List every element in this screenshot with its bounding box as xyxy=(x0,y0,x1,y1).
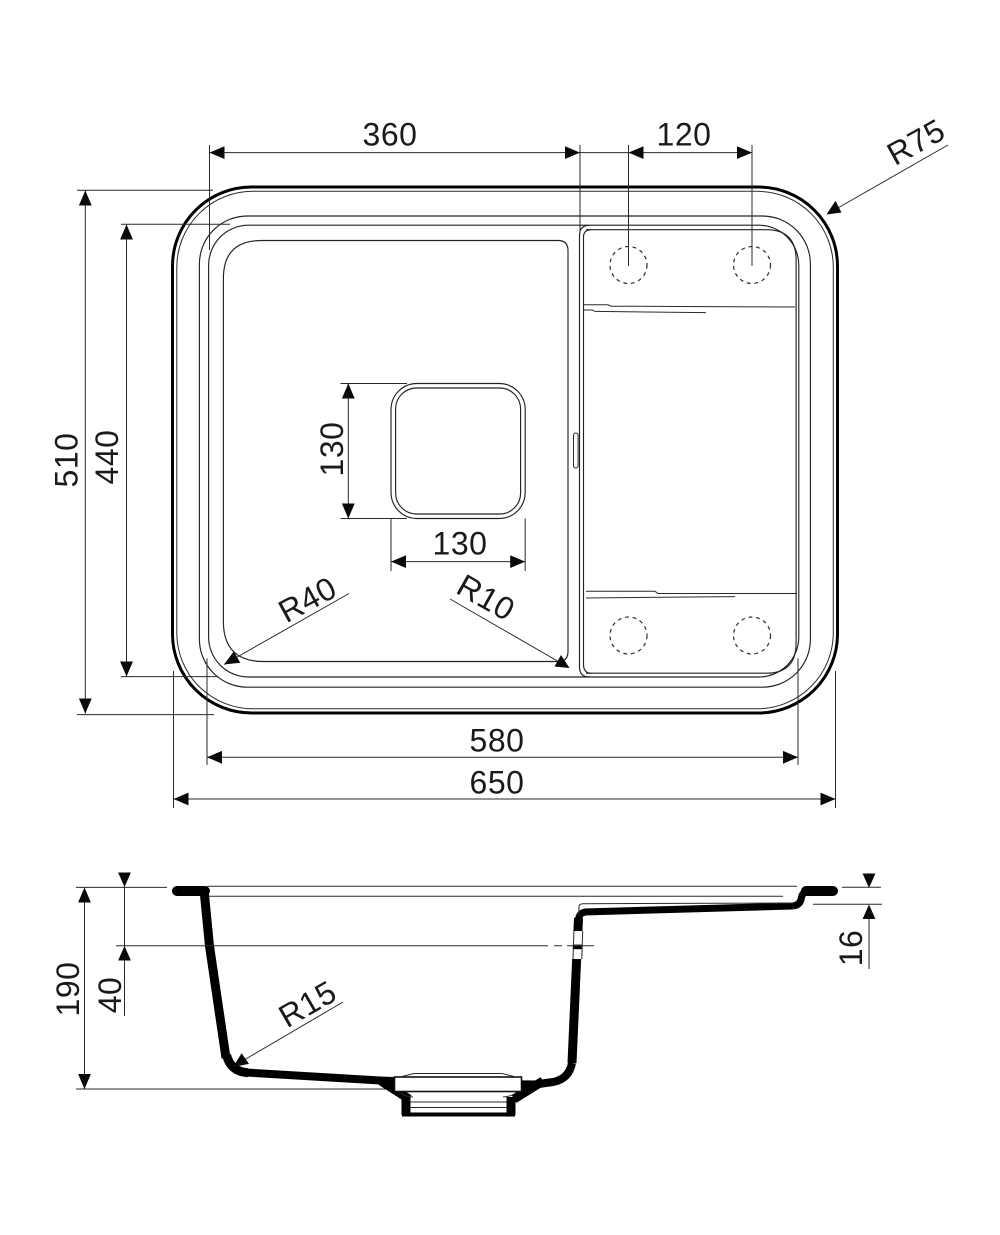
svg-text:120: 120 xyxy=(657,117,712,153)
svg-text:440: 440 xyxy=(89,430,125,485)
svg-text:650: 650 xyxy=(470,765,525,801)
svg-text:130: 130 xyxy=(433,526,488,562)
svg-text:580: 580 xyxy=(470,723,525,759)
svg-text:40: 40 xyxy=(92,977,128,1014)
svg-text:360: 360 xyxy=(363,117,418,153)
svg-text:510: 510 xyxy=(49,433,85,488)
svg-text:190: 190 xyxy=(50,962,86,1017)
svg-text:130: 130 xyxy=(314,422,350,477)
svg-text:16: 16 xyxy=(833,930,869,967)
